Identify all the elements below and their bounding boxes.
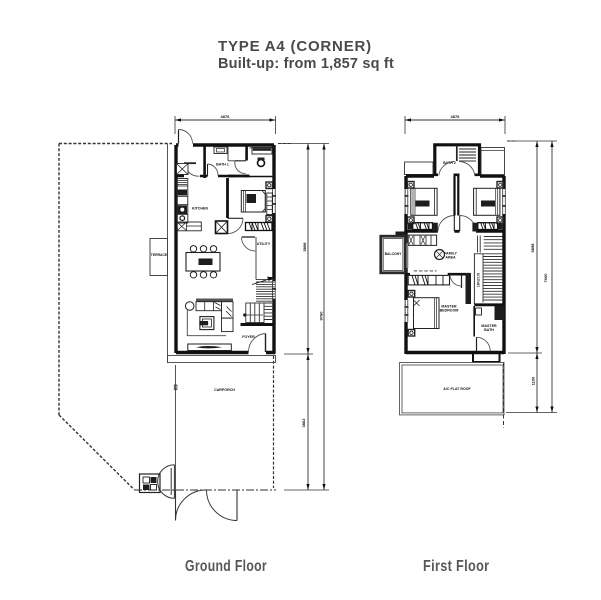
svg-text:BATH: BATH: [484, 328, 494, 332]
svg-text:AREA: AREA: [445, 256, 456, 260]
svg-text:TERRACE: TERRACE: [151, 253, 168, 257]
svg-text:5898: 5898: [530, 243, 535, 253]
svg-text:BALCONY: BALCONY: [385, 252, 403, 256]
svg-text:FOYER: FOYER: [242, 335, 255, 339]
svg-text:16R@178: 16R@178: [477, 273, 481, 288]
svg-text:UTILITY: UTILITY: [257, 242, 271, 246]
svg-text:BEDROOM: BEDROOM: [440, 309, 459, 313]
svg-text:A/C FLAT ROOF: A/C FLAT ROOF: [443, 387, 471, 391]
svg-text:3862: 3862: [301, 418, 306, 428]
svg-text:BATH 1: BATH 1: [216, 163, 229, 167]
svg-text:KITCHEN: KITCHEN: [192, 207, 208, 211]
svg-text:1100: 1100: [531, 376, 536, 385]
svg-text:7000: 7000: [543, 273, 548, 283]
svg-text:9760: 9760: [319, 311, 324, 321]
svg-text:CARPORCH: CARPORCH: [214, 388, 235, 392]
svg-text:5898: 5898: [302, 242, 307, 252]
svg-text:4876: 4876: [451, 114, 461, 119]
svg-text:4876: 4876: [221, 114, 231, 119]
